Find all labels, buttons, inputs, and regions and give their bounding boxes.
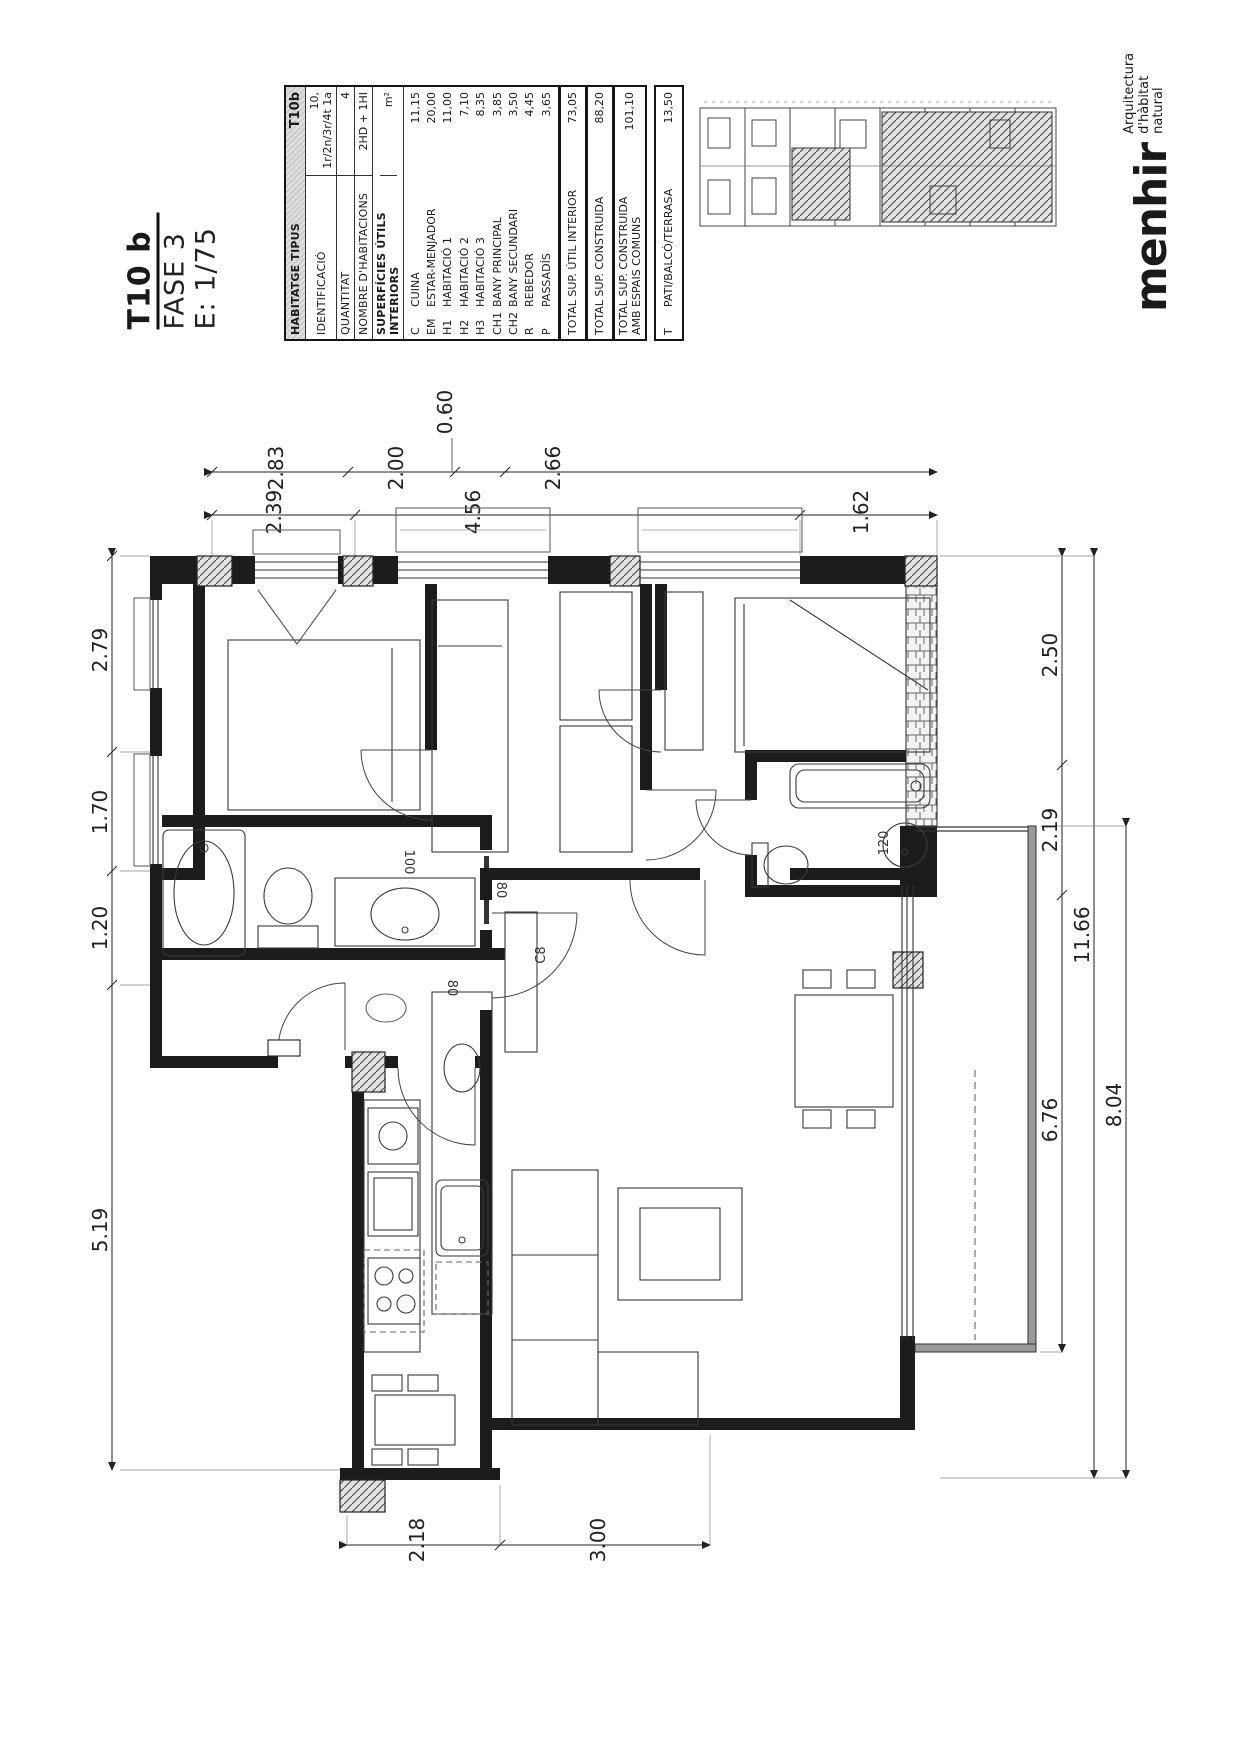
kitchen-table [375, 1395, 455, 1445]
dim-right-2-50: 2.50 [1038, 633, 1062, 678]
dim-top-1-62: 1.62 [849, 490, 873, 535]
terrace-value: 13,50 [662, 87, 675, 170]
walls [150, 556, 937, 1480]
room-area: 20,00 [425, 87, 438, 170]
room-row: H3HABITACIÓ 38,35 [473, 87, 489, 339]
coffee-table [618, 1188, 742, 1300]
windows [134, 508, 913, 1340]
room-name: REBEDOR [523, 170, 536, 307]
rooms-block: CCUINA11,15 EMESTAR-MENJADOR20,00 H1HABI… [403, 87, 558, 339]
dim-right-11-66: 11.66 [1070, 906, 1094, 963]
dim-left-1-70: 1.70 [88, 790, 112, 835]
surfaces-header-row: SUPERFÍCIES ÚTILS INTERIORS m² [372, 87, 403, 339]
phase-label: FASE 3 [159, 120, 190, 330]
room-row: CH2BANY SECUNDARI3,50 [505, 87, 521, 339]
dim-left-2-79: 2.79 [88, 628, 112, 673]
row-label: QUANTITAT [337, 176, 354, 339]
room-code: EM [425, 307, 438, 339]
structural-piers [197, 556, 937, 1512]
total-comuns-row: TOTAL SUP. CONSTRUIDA AMB ESPAIS COMUNS … [614, 85, 647, 341]
table-header-row: HABITATGE TIPUS T10b [286, 87, 305, 339]
hall-door-label: C8 [534, 946, 549, 963]
logo-name: menhir [1133, 143, 1170, 312]
room-name: BANY PRINCIPAL [491, 170, 504, 307]
terrace-code: T [662, 307, 675, 339]
surfaces-unit: m² [380, 87, 397, 176]
terrace-row: T PATI/BALCÓ/TERRASA 13,50 [654, 85, 684, 341]
room-area: 4,45 [523, 87, 536, 170]
total-util-row: TOTAL SUP. ÚTIL INTERIOR 73,05 [560, 85, 587, 341]
closet [665, 592, 703, 750]
door-width-label: 80 [493, 882, 508, 899]
total-label: TOTAL SUP. CONSTRUIDA [591, 175, 608, 339]
room-code: H3 [474, 307, 487, 339]
curtain-mark [258, 590, 336, 644]
bed-h1 [228, 640, 420, 810]
room-row: PPASSADÍS3,65 [538, 87, 554, 339]
table-info-box: HABITATGE TIPUS T10b IDENTIFICACIÓ 10, 1… [284, 85, 560, 341]
masonry-wall [906, 584, 937, 826]
room-area: 11,15 [409, 87, 422, 170]
row-value: 4 [337, 87, 354, 176]
total-label: TOTAL SUP. ÚTIL INTERIOR [564, 175, 581, 339]
room-name: BANY SECUNDARI [507, 170, 520, 307]
room-code: P [540, 307, 553, 339]
door-swings [278, 690, 751, 1145]
dining-table [795, 995, 893, 1107]
cooktop [368, 1258, 420, 1324]
unit-code: T10 b [125, 212, 160, 329]
dim-top-2-39: 2.39 [262, 490, 286, 535]
dim-top-2-83: 2.83 [264, 446, 288, 491]
toilet-1 [264, 868, 312, 924]
bed-h2 [432, 600, 508, 852]
dim-bottom-2-18: 2.18 [405, 1518, 429, 1563]
dim-top-0-60: 0.60 [433, 390, 457, 435]
door-width-label-2: 80 [444, 980, 459, 997]
room-area: 3,85 [491, 87, 504, 170]
terrace-label: PATI/BALCÓ/TERRASA [662, 170, 675, 307]
table-row: IDENTIFICACIÓ 10, 1r/2n/3r/4t 1a [305, 87, 336, 339]
logo-tagline-2: d'hàbitat natural [1138, 53, 1167, 134]
room-name: ESTAR-MENJADOR [425, 170, 438, 307]
room-code: CH2 [507, 307, 520, 339]
row-label: NOMBRE D'HABITACIONS [355, 176, 372, 339]
bed-h3 [735, 598, 930, 752]
room-name: PASSADÍS [540, 170, 553, 307]
wardrobe [560, 592, 632, 720]
vanity-width-label: 100 [401, 850, 416, 875]
room-area: 3,65 [540, 87, 553, 170]
total-label: TOTAL SUP. CONSTRUIDA AMB ESPAIS COMUNS [615, 175, 645, 339]
dim-left-1-20: 1.20 [88, 906, 112, 951]
total-construida-row: TOTAL SUP. CONSTRUIDA 88,20 [587, 85, 614, 341]
sofa [512, 1170, 598, 1425]
logo-tagline-1: Arquitectura [1123, 53, 1138, 134]
room-area: 3,50 [507, 87, 520, 170]
toilet-1-tank [258, 926, 318, 948]
cabinet [368, 1172, 418, 1236]
room-name: HABITACIÓ 3 [474, 170, 487, 307]
table-row: NOMBRE D'HABITACIONS 2HD + 1HI [354, 87, 372, 339]
toilet-2 [764, 846, 808, 884]
header-label: HABITATGE TIPUS [287, 175, 304, 339]
room-name: HABITACIÓ 2 [458, 170, 471, 307]
site-key-plan [700, 102, 1056, 226]
logo-tagline: Arquitectura d'hàbitat natural [1123, 53, 1167, 134]
total-value: 88,20 [591, 87, 608, 175]
room-name: HABITACIÓ 1 [441, 170, 454, 307]
drawing-sheet: 2.83 2.00 0.60 2.66 2.39 4.56 1.62 2.79 … [0, 0, 1240, 1755]
sofa-chaise [598, 1352, 698, 1425]
dim-top-2-00: 2.00 [384, 446, 408, 491]
tv-unit [505, 912, 537, 1052]
room-code: R [523, 307, 536, 339]
room-row: CCUINA11,15 [407, 87, 423, 339]
balcony [915, 826, 1036, 1352]
title-block: T10 b FASE 3 E: 1/75 [125, 120, 230, 330]
dim-left-5-19: 5.19 [88, 1208, 112, 1253]
balcony-railing [1028, 826, 1036, 1352]
room-row: CH1BANY PRINCIPAL3,85 [489, 87, 505, 339]
dim-right-2-19: 2.19 [1038, 808, 1062, 853]
logo: menhir Arquitectura d'hàbitat natural [1080, 84, 1170, 320]
surfaces-label: SUPERFÍCIES ÚTILS INTERIORS [373, 176, 403, 339]
room-code: CH1 [491, 307, 504, 339]
table-row: QUANTITAT 4 [336, 87, 354, 339]
fridge [368, 1108, 418, 1164]
header-value: T10b [286, 87, 305, 175]
room-row: RREBEDOR4,45 [522, 87, 538, 339]
row-label: IDENTIFICACIÓ [313, 176, 330, 339]
room-row: H2HABITACIÓ 27,10 [456, 87, 472, 339]
room-area: 7,10 [458, 87, 471, 170]
room-area: 8,35 [474, 87, 487, 170]
dim-top-2-66: 2.66 [541, 446, 565, 491]
row-value: 2HD + 1HI [355, 87, 372, 176]
room-row: H1HABITACIÓ 111,00 [440, 87, 456, 339]
dim-right-6-76: 6.76 [1038, 1098, 1062, 1143]
sink-width-label: 120 [877, 831, 892, 856]
dimension-lines [107, 438, 1126, 1550]
total-value: 73,05 [564, 87, 581, 175]
dim-bottom-3-00: 3.00 [586, 1518, 610, 1563]
scale-label: E: 1/75 [190, 120, 221, 330]
row-value: 10, 1r/2n/3r/4t 1a [306, 87, 336, 176]
room-code: H1 [441, 307, 454, 339]
spec-table: HABITATGE TIPUS T10b IDENTIFICACIÓ 10, 1… [284, 85, 656, 341]
room-row: EMESTAR-MENJADOR20,00 [423, 87, 439, 339]
room-name: CUINA [409, 170, 422, 307]
room-area: 11,00 [441, 87, 454, 170]
dim-top-4-56: 4.56 [461, 490, 485, 535]
total-value: 101,10 [621, 87, 638, 175]
room-code: H2 [458, 307, 471, 339]
furniture [163, 592, 930, 1465]
dim-right-8-04: 8.04 [1102, 1083, 1126, 1128]
room-code: C [409, 307, 422, 339]
